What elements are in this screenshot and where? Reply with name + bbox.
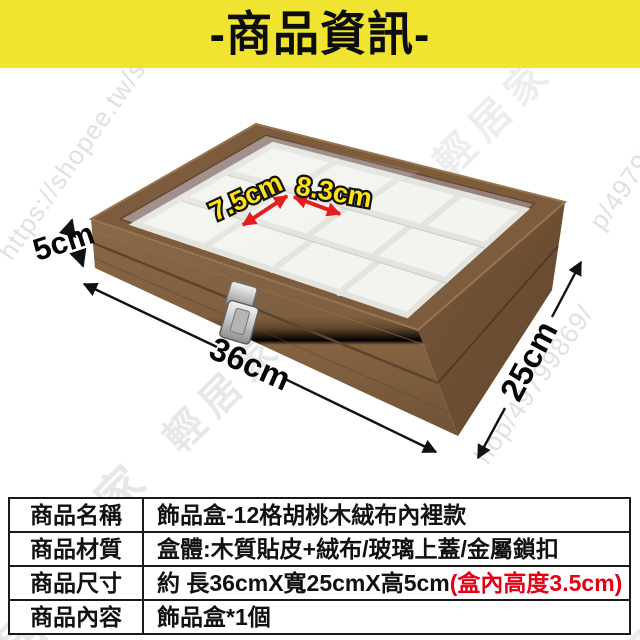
page-title: -商品資訊- [210, 10, 431, 58]
table-row: 商品材質 盒體:木質貼皮+絨布/玻璃上蓋/金屬鎖扣 [9, 532, 630, 566]
spec-value-size: 約 長36cmX寬25cmX高5cm [157, 570, 450, 596]
spec-label: 商品名稱 [9, 498, 143, 532]
spec-value: 飾品盒*1個 [143, 600, 630, 634]
spec-table: 商品名稱 飾品盒-12格胡桃木絨布內裡款 商品材質 盒體:木質貼皮+絨布/玻璃上… [8, 497, 631, 635]
table-row: 商品內容 飾品盒*1個 [9, 600, 630, 634]
spec-value: 盒體:木質貼皮+絨布/玻璃上蓋/金屬鎖扣 [143, 532, 630, 566]
table-row: 商品尺寸 約 長36cmX寬25cmX高5cm(盒內高度3.5cm) [9, 566, 630, 600]
spec-label: 商品材質 [9, 532, 143, 566]
product-info-page: https://shopee.tw/sh p/49799869/ hop/497… [0, 0, 640, 640]
spec-label: 商品尺寸 [9, 566, 143, 600]
header-banner: -商品資訊- [0, 0, 640, 68]
arrow-width-upper [552, 262, 581, 317]
height-label: 5cm [29, 215, 99, 267]
spec-value: 飾品盒-12格胡桃木絨布內裡款 [143, 498, 630, 532]
table-row: 商品名稱 飾品盒-12格胡桃木絨布內裡款 [9, 498, 630, 532]
spec-value-inner-height: (盒內高度3.5cm) [450, 570, 623, 596]
arrow-width-lower [478, 408, 505, 458]
spec-value: 約 長36cmX寬25cmX高5cm(盒內高度3.5cm) [143, 566, 630, 600]
spec-label: 商品內容 [9, 600, 143, 634]
